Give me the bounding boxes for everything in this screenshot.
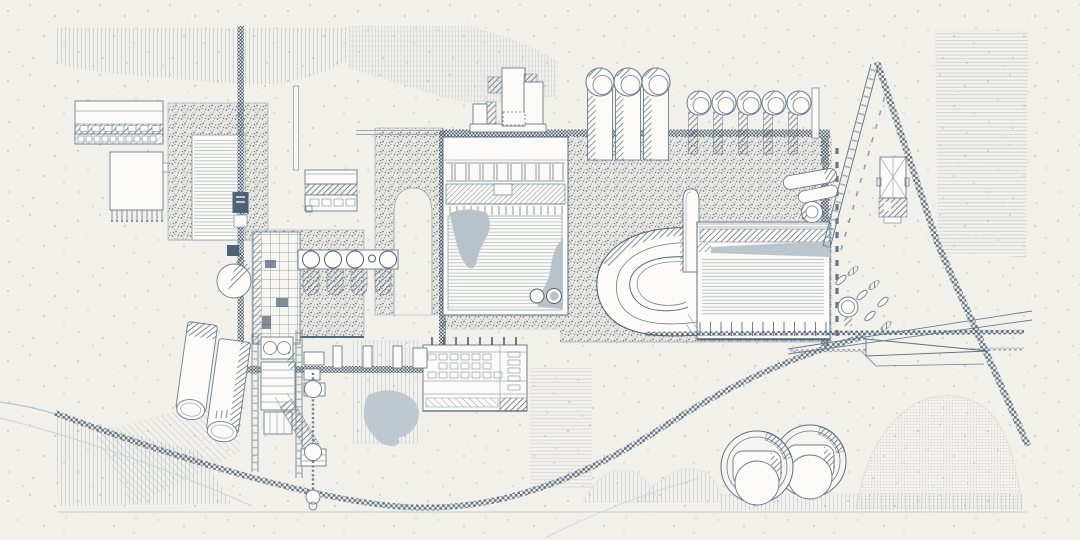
lattice-tower: [253, 232, 300, 344]
site-plan-drawing: Industrial site plan — monochrome blue i…: [0, 0, 1080, 540]
thin-pole: [294, 86, 299, 170]
stack-pole: [812, 88, 819, 138]
right-process-hall: [686, 222, 830, 340]
hip-roof-hut: [877, 157, 909, 223]
central-hall: [443, 137, 568, 315]
dock-hatch-band: [426, 398, 498, 407]
round-chimney: [680, 189, 699, 272]
roof-hatch-band: [700, 229, 830, 242]
hut-apron: [879, 198, 907, 217]
vat-a: [530, 289, 544, 303]
three-large-stacks: [586, 68, 670, 160]
rail-checkered: [645, 332, 1024, 334]
site-plan-svg: Industrial site plan — monochrome blue i…: [0, 0, 1080, 540]
warehouse-left-top: [75, 101, 163, 144]
field-hlines-right: [935, 30, 1028, 258]
loading-office-block: [423, 337, 527, 411]
hall-ruled-floor: [702, 258, 824, 316]
small-shed: [305, 170, 357, 212]
round-basin: [838, 297, 858, 317]
slot-row: [80, 126, 160, 132]
